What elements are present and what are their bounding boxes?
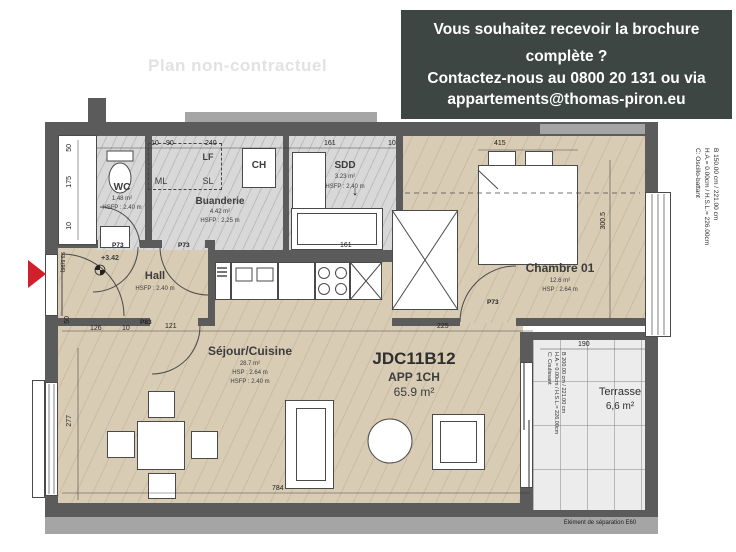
dimension-label: 50 (64, 316, 71, 324)
room-sejour-name: Séjour/Cuisine (195, 345, 305, 359)
unit-code: JDC11B12 (352, 349, 476, 369)
room-buanderie-area: 4.42 m² (180, 209, 260, 216)
room-terrasse-name: Terrasse (588, 386, 652, 399)
bedroom-window-line3: C: Oscillo-battant (694, 148, 701, 338)
brochure-banner: Vous souhaitez recevoir la brochure comp… (401, 10, 732, 119)
dimension-label: 10 (66, 222, 73, 230)
wall-top-stub (88, 98, 106, 124)
terrace-window-line1: B 200.00 cm / 221.00 cm (560, 352, 566, 484)
wall-terrace-top (533, 332, 645, 340)
wall-hall-bottom-b (198, 318, 215, 326)
dimension-label: 161 (340, 242, 352, 249)
entrance-arrow-icon (28, 260, 46, 288)
wall-bottom (45, 503, 533, 517)
chair-right (191, 431, 218, 459)
label-lf: LF (196, 152, 220, 162)
chair-bottom (148, 473, 176, 499)
dimension-label: 50 (66, 144, 73, 152)
wall-bedroom-right-upper (645, 122, 658, 192)
wall-hall-top-b (140, 240, 162, 248)
chair-top (148, 391, 175, 418)
door-label-p73-hall-right: P73 (178, 242, 190, 249)
bedroom-window-annotation: C: Oscillo-battant H.A.= 0.00cm / H.S.L.… (694, 148, 719, 338)
room-buanderie-ceiling: HSFP : 2.25 m (180, 218, 260, 225)
wall-upper-strip (185, 112, 377, 122)
dimension-label: 175 (66, 176, 73, 188)
dimension-label: 415 (494, 140, 506, 147)
kitchen-cabinet (278, 262, 315, 300)
sofa-cushions (296, 408, 326, 481)
room-buanderie-name: Buanderie (180, 196, 260, 208)
technical-shaft (58, 135, 97, 245)
dimension-label: 161 (324, 140, 336, 147)
banner-line-1: Vous souhaitez recevoir la brochure comp… (407, 16, 726, 70)
wall-buanderie-sdd (283, 135, 289, 250)
wall-living-terrace-upper (520, 332, 533, 362)
dimension-label: 10 (151, 140, 159, 147)
kitchen-cooktop (315, 262, 350, 300)
window-living-left (45, 382, 58, 496)
door-label-p73-bedroom: P73 (487, 299, 499, 306)
wall-sdd-bedroom (396, 135, 403, 210)
dimension-label: 126 (90, 325, 102, 332)
banner-email: appartements@thomas-piron.eu (407, 86, 726, 113)
room-terrasse-area: 6,6 m² (588, 401, 652, 413)
dimension-label: 10 (388, 140, 396, 147)
label-sl: SL (196, 176, 220, 186)
terrace-window-line2: H.A.= 0.00cm / H.S.L.= 226.00cm (553, 352, 559, 484)
kitchen-sink-unit (231, 262, 278, 300)
window-bedroom-right (645, 192, 671, 337)
door-label-p73-hall-left: P73 (112, 242, 124, 249)
wall-hall-bottom-a (58, 318, 150, 326)
entrance-door-opening (45, 254, 58, 316)
dimension-label: 784 (272, 485, 284, 492)
terrace-window-annotation: C: Coulissant H.A.= 0.00cm / H.S.L.= 226… (546, 352, 566, 484)
armchair-cushion (440, 421, 477, 463)
bed-pillow-left (488, 151, 516, 166)
dimension-label: 10 (122, 325, 130, 332)
dining-table (137, 421, 185, 470)
wall-left-mid (45, 316, 58, 382)
unit-type: APP 1CH (352, 371, 476, 385)
wall-left-upper (45, 122, 58, 254)
wall-bedroom-right-lower (645, 337, 658, 345)
chair-left (107, 431, 135, 458)
dimension-label: 277 (66, 415, 73, 427)
kitchen-fridge (350, 262, 382, 300)
dimension-label: 121 (165, 323, 177, 330)
room-chambre-ceiling: HSP : 2.64 m (505, 287, 615, 294)
dimension-label: 225 (437, 323, 449, 330)
bed (478, 165, 578, 265)
watermark-text: Plan non-contractuel (148, 56, 327, 76)
shower-tray-inner (297, 213, 377, 245)
room-chambre-name: Chambre 01 (505, 262, 615, 276)
entrance-door-dimension: 93.5(96) (59, 252, 65, 273)
terrace-window-line3: C: Coulissant (546, 352, 552, 484)
hall-level-value: +3.42 (92, 255, 128, 263)
room-sejour-ceiling2: HSFP : 2.40 m (195, 379, 305, 386)
wall-kitchen-back (213, 250, 396, 262)
room-sdd-name: SDD (320, 160, 370, 172)
wall-hall-top-c (205, 240, 215, 248)
room-wc-name: WC (100, 182, 144, 194)
unit-area: 65.9 m² (352, 386, 476, 400)
window-living-left-outer (32, 380, 45, 498)
label-ch: CH (242, 160, 276, 172)
sliding-door-terrace (520, 362, 533, 488)
label-ml: ML (149, 176, 173, 186)
dimension-label: 190 (578, 341, 590, 348)
room-sdd-area: 3.23 m² (320, 174, 370, 181)
room-sejour-area: 28.7 m² (195, 361, 305, 368)
wall-bedroom-bottom-a (392, 318, 460, 326)
bedroom-window-line1: B 150.00 cm / 221.00 cm (712, 148, 719, 338)
wardrobe (392, 210, 458, 310)
room-wc-area: 1.48 m² (100, 196, 144, 203)
room-sejour-ceiling1: HSP : 2.64 m (195, 370, 305, 377)
room-sdd-ceiling: HSFP : 2.40 m (310, 184, 380, 191)
slope-arrow-icon: ↓ (348, 184, 362, 199)
room-hall-name: Hall (130, 270, 180, 283)
room-hall-ceiling: HSFP : 2.40 m (118, 286, 192, 293)
wall-terrace-right (645, 345, 658, 517)
dimension-label: 240 (205, 140, 217, 147)
floorplan-page: Plan non-contractuel Vous souhaitez rece… (0, 0, 736, 552)
separation-note: Elément de séparation E60 (548, 520, 652, 527)
bedroom-window-line2: H.A.= 0.00cm / H.S.L.= 226.00cm (703, 148, 710, 338)
dimension-label: 90 (166, 140, 174, 147)
room-wc-ceiling: HSFP : 2.40 m (96, 205, 148, 212)
door-label-p83: P83 (140, 319, 152, 326)
dimension-label: 300.5 (600, 212, 607, 230)
bed-pillow-right (525, 151, 553, 166)
wall-bedroom-bottom-b (516, 318, 645, 326)
wall-top-party (540, 124, 645, 134)
wall-terrace-separation (533, 510, 645, 517)
room-chambre-area: 12.6 m² (505, 278, 615, 285)
wall-living-terrace-lower (520, 488, 533, 517)
kitchen-faucet-unit (215, 262, 231, 300)
